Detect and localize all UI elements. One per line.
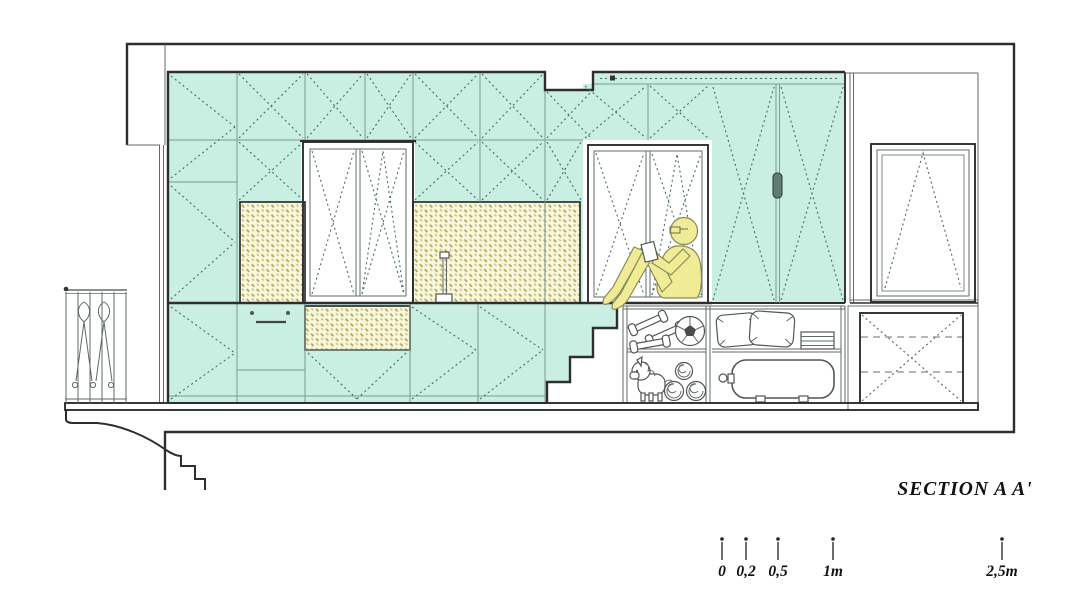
water-tank-icon xyxy=(719,360,834,402)
scale-tick-02: 0,2 xyxy=(736,537,756,580)
svg-text:1m: 1m xyxy=(823,563,843,580)
svg-text:0,2: 0,2 xyxy=(736,563,756,580)
hatch-left-icon xyxy=(240,202,305,303)
door-handle-icon xyxy=(773,173,782,198)
section-aa-canvas: SECTION A A' 0 0,2 0,5 1m 2,5m xyxy=(0,0,1080,596)
svg-text:2,5m: 2,5m xyxy=(985,563,1017,580)
section-drawing: SECTION A A' 0 0,2 0,5 1m 2,5m xyxy=(0,0,1080,596)
left-window-opening xyxy=(301,140,415,303)
balcony-cornice-icon xyxy=(66,410,205,490)
scale-tick-25m: 2,5m xyxy=(985,537,1017,580)
section-title: SECTION A A' xyxy=(897,479,1032,500)
pillows-icon xyxy=(716,311,795,348)
folded-linen-icon xyxy=(801,332,834,349)
balcony-railing-icon xyxy=(64,287,127,403)
floor-slab xyxy=(65,403,978,410)
right-tilt-window-icon xyxy=(871,144,975,302)
scale-tick-0: 0 xyxy=(718,537,726,580)
scale-tick-05: 0,5 xyxy=(768,537,788,580)
hatch-under-window-icon xyxy=(305,306,410,350)
balcony-door-frame xyxy=(160,145,164,403)
shelf-unit xyxy=(623,306,845,403)
svg-text:0: 0 xyxy=(718,563,726,580)
scale-tick-1m: 1m xyxy=(823,537,843,580)
dashed-appliance-box-icon xyxy=(848,306,978,410)
right-wall-zone xyxy=(845,73,978,410)
svg-text:0,5: 0,5 xyxy=(768,563,788,580)
scale-bar: 0 0,2 0,5 1m 2,5m xyxy=(718,537,1018,580)
soccer-ball-icon xyxy=(676,317,705,346)
rolled-mats-icon xyxy=(665,363,706,401)
hatch-right-icon xyxy=(413,202,580,303)
